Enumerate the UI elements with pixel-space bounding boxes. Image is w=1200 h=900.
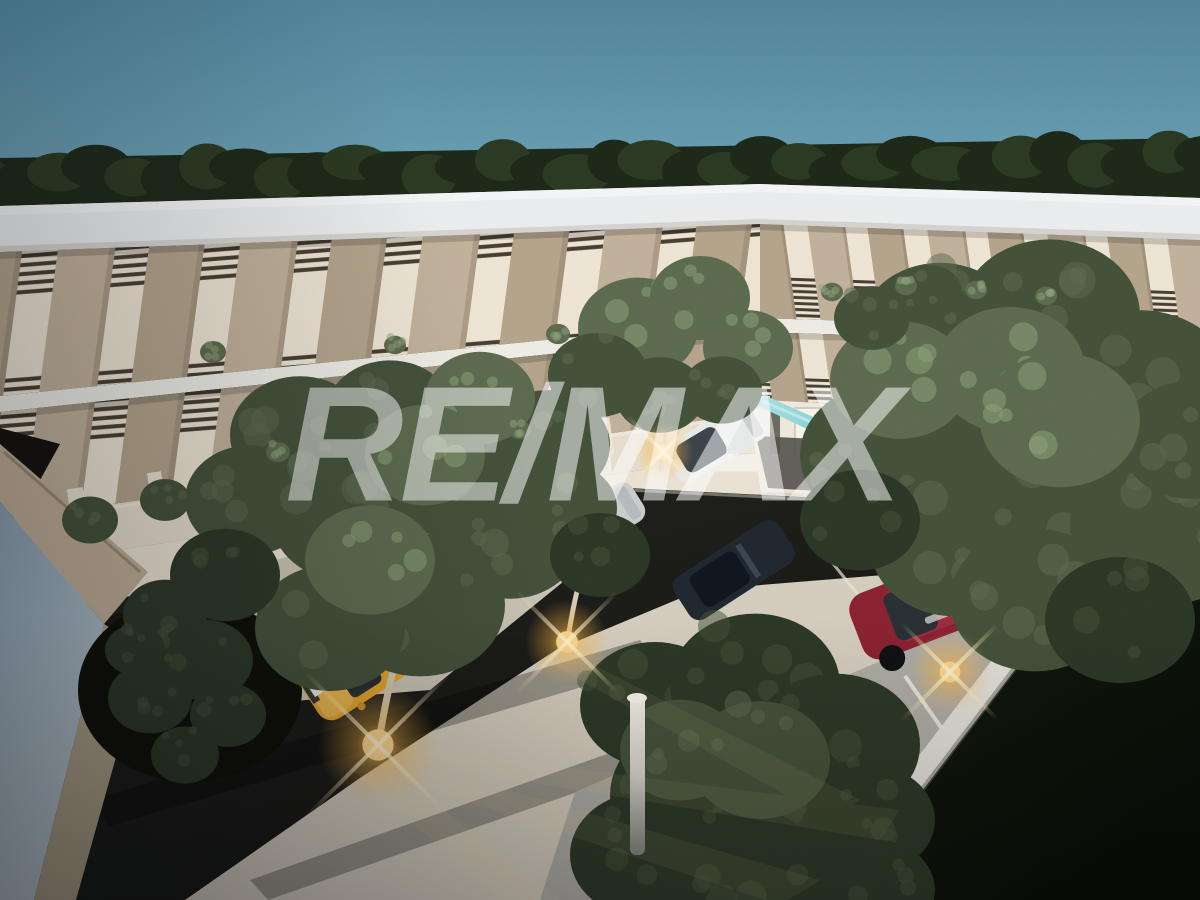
film-grain bbox=[0, 0, 1200, 900]
architectural-rendering: RE/MAX bbox=[0, 0, 1200, 900]
render-scene bbox=[0, 0, 1200, 900]
